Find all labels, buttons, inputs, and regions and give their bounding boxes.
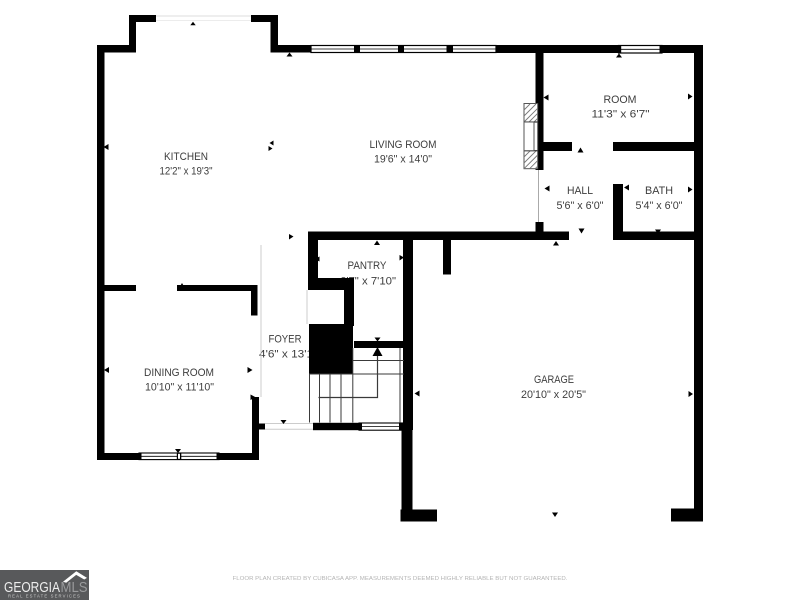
svg-text:FOYER: FOYER	[269, 334, 302, 346]
svg-text:PANTRY: PANTRY	[348, 260, 388, 272]
svg-text:11'3" x 6'7": 11'3" x 6'7"	[592, 109, 650, 121]
svg-text:10'10" x 11'10": 10'10" x 11'10"	[145, 382, 214, 394]
svg-text:12'2" x 19'3": 12'2" x 19'3"	[160, 166, 213, 178]
svg-text:19'6" x 14'0": 19'6" x 14'0"	[374, 154, 432, 166]
svg-text:KITCHEN: KITCHEN	[164, 151, 208, 163]
svg-text:DINING ROOM: DINING ROOM	[144, 367, 214, 379]
svg-text:5'4" x 6'0": 5'4" x 6'0"	[636, 200, 683, 212]
svg-text:BATH: BATH	[645, 185, 673, 197]
svg-text:REAL ESTATE SERVICES: REAL ESTATE SERVICES	[8, 594, 81, 599]
svg-text:5'6" x 6'0": 5'6" x 6'0"	[557, 200, 604, 212]
svg-text:20'10" x 20'5": 20'10" x 20'5"	[521, 389, 586, 401]
svg-text:LIVING ROOM: LIVING ROOM	[370, 139, 437, 151]
svg-text:FLOOR PLAN CREATED BY CUBICASA: FLOOR PLAN CREATED BY CUBICASA APP. MEAS…	[233, 576, 568, 582]
svg-text:GARAGE: GARAGE	[534, 374, 574, 386]
svg-text:ROOM: ROOM	[604, 94, 637, 106]
svg-text:HALL: HALL	[567, 185, 593, 197]
